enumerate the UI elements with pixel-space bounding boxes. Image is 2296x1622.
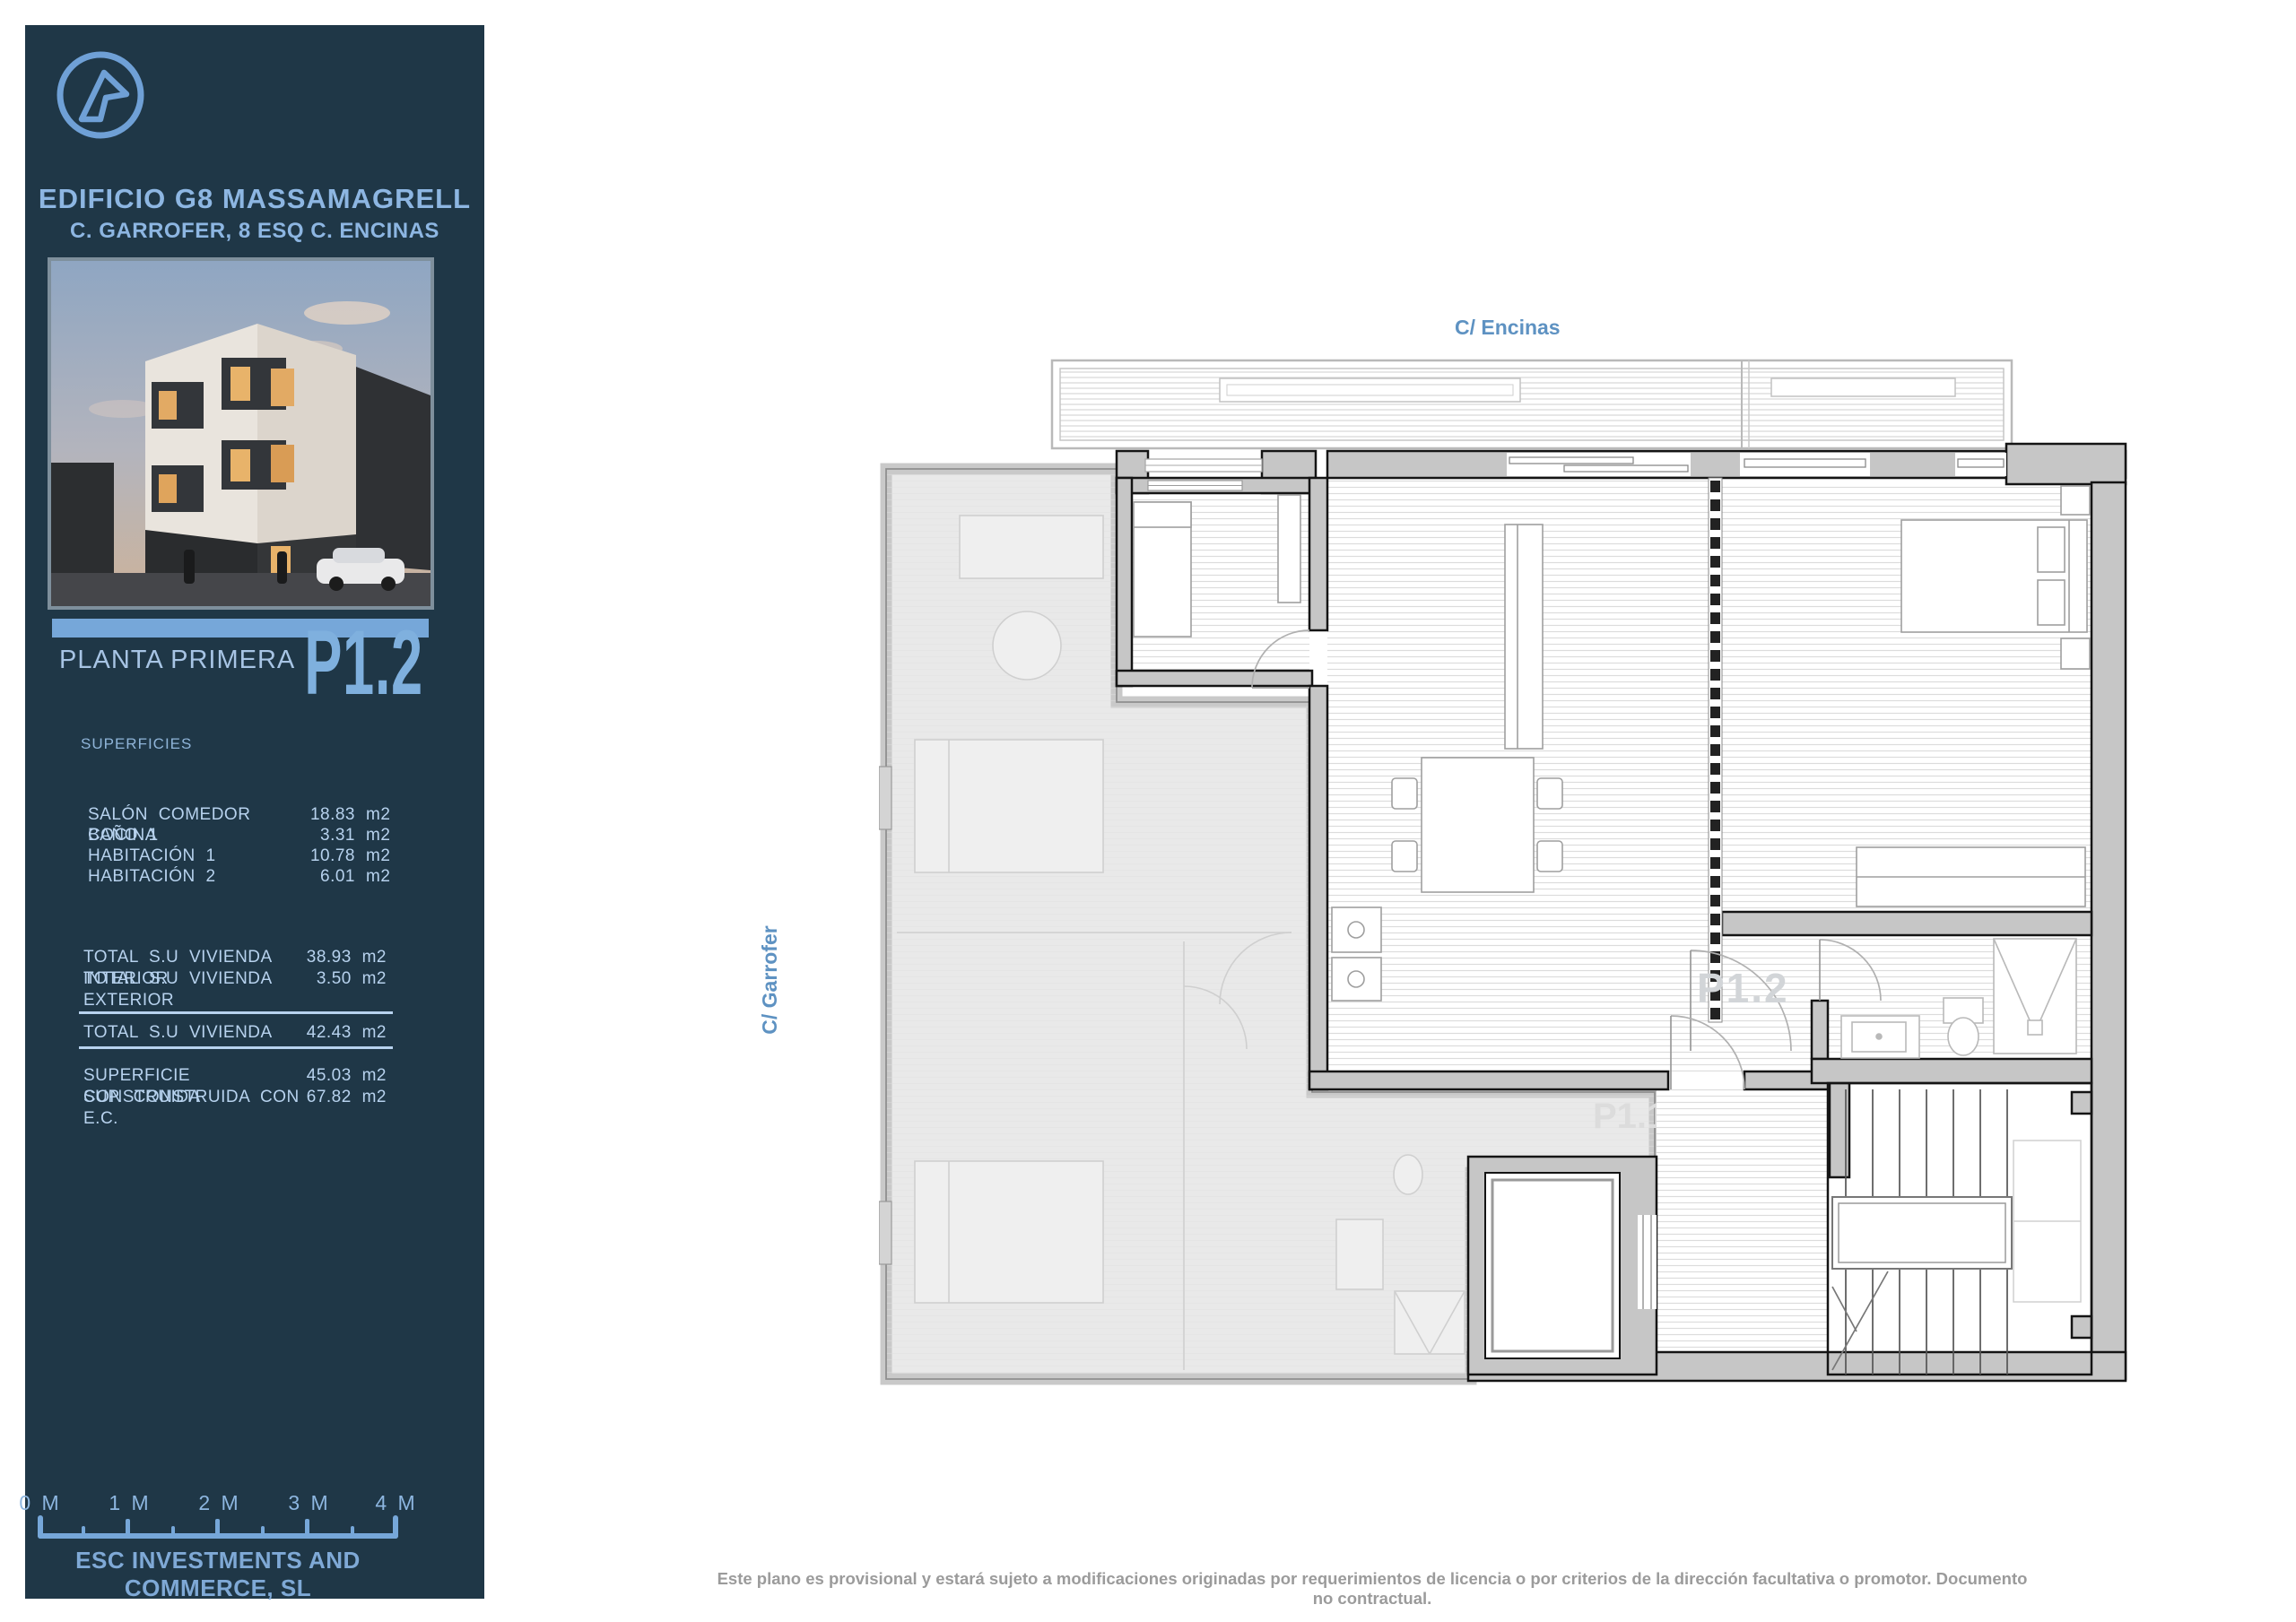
floor-plan-drawing: P1.1 (879, 359, 2152, 1399)
table-row: SALÓN COMEDOR COCINA 18.83 m2 (88, 804, 402, 825)
divider-line (79, 1046, 393, 1049)
scale-label: 4 M (375, 1491, 417, 1515)
room-label: SALÓN COMEDOR COCINA (88, 804, 300, 825)
total-label: TOTAL S.U VIVIENDA INTERIOR (83, 947, 307, 968)
scale-label: 3 M (288, 1491, 330, 1515)
scale-ruler: 0 M 1 M 2 M 3 M 4 M (38, 1491, 398, 1543)
room-unit: m2 (355, 866, 402, 887)
grand-total-value: 42.43 m2 (307, 1022, 387, 1044)
built-label: SUPERFICIE CONSTRUIDA (83, 1065, 307, 1087)
divider-line (79, 1011, 393, 1014)
inactive-unit-watermark: P1.1 (1593, 1097, 1666, 1136)
ruler-tick-minor (171, 1526, 175, 1537)
building-photo-art (51, 261, 430, 606)
building-photo (48, 257, 434, 610)
scale-label: 2 M (198, 1491, 240, 1515)
ruler-tick-minor (351, 1526, 354, 1537)
total-value: 3.50 m2 (317, 968, 387, 990)
ruler-tick-minor (82, 1526, 85, 1537)
room-value: 6.01 (300, 866, 355, 887)
floorplan-page: { "sidebar": { "title": "EDIFICIO G8 MAS… (0, 0, 2296, 1622)
room-unit: m2 (355, 804, 402, 825)
room-surface-table: SALÓN COMEDOR COCINA 18.83 m2 BAÑO 1 3.3… (88, 804, 402, 887)
street-label-encinas: C/ Encinas (1455, 316, 1561, 340)
total-value: 38.93 m2 (307, 947, 387, 968)
table-row: SUP. CONSTRUIDA CON E.C. 67.82 m2 (83, 1087, 387, 1108)
table-row: HABITACIÓN 1 10.78 m2 (88, 846, 402, 866)
built-label: SUP. CONSTRUIDA CON E.C. (83, 1087, 307, 1108)
grand-total-row: TOTAL S.U VIVIENDA 42.43 m2 (83, 1022, 387, 1044)
room-unit: m2 (355, 846, 402, 866)
table-row: BAÑO 1 3.31 m2 (88, 825, 402, 846)
scale-label: 0 M (19, 1491, 61, 1515)
ruler-end (393, 1515, 398, 1539)
table-row: HABITACIÓN 2 6.01 m2 (88, 866, 402, 887)
total-label: TOTAL S.U VIVIENDA EXTERIOR (83, 968, 317, 990)
ruler-tick (215, 1519, 220, 1537)
room-unit: m2 (355, 825, 402, 846)
table-row: TOTAL S.U VIVIENDA INTERIOR 38.93 m2 (83, 947, 387, 968)
ruler-tick (126, 1519, 130, 1537)
floor-level-label: PLANTA PRIMERA (59, 646, 295, 675)
table-row: TOTAL S.U VIVIENDA EXTERIOR 3.50 m2 (83, 968, 387, 990)
built-value: 45.03 m2 (307, 1065, 387, 1087)
room-value: 18.83 (300, 804, 355, 825)
unit-code-large: P1.2 (304, 617, 423, 708)
company-name: ESC INVESTMENTS AND COMMERCE, SL (25, 1547, 411, 1602)
info-sidebar: EDIFICIO G8 MASSAMAGRELL C. GARROFER, 8 … (25, 25, 484, 1599)
building-address: C. GARROFER, 8 ESQ C. ENCINAS (25, 219, 484, 244)
ruler-tick-minor (261, 1526, 265, 1537)
street-label-garrofer: C/ Garrofer (758, 917, 781, 1043)
ruler-end (38, 1515, 43, 1539)
surfaces-heading: SUPERFICIES (81, 735, 192, 753)
grand-total-label: TOTAL S.U VIVIENDA (83, 1022, 307, 1044)
room-label: BAÑO 1 (88, 825, 300, 846)
table-row: TOTAL S.U VIVIENDA 42.43 m2 (83, 1022, 387, 1044)
totals-table: TOTAL S.U VIVIENDA INTERIOR 38.93 m2 TOT… (83, 947, 387, 990)
scale-label: 1 M (109, 1491, 151, 1515)
terrace (1052, 360, 2012, 448)
disclaimer-text: Este plano es provisional y estará sujet… (713, 1569, 2031, 1609)
building-title: EDIFICIO G8 MASSAMAGRELL (25, 183, 484, 215)
room-label: HABITACIÓN 2 (88, 866, 300, 887)
sliding-partition (1709, 478, 1722, 1022)
room-label: HABITACIÓN 1 (88, 846, 300, 866)
room-value: 10.78 (300, 846, 355, 866)
table-row: SUPERFICIE CONSTRUIDA 45.03 m2 (83, 1065, 387, 1087)
room-value: 3.31 (300, 825, 355, 846)
active-unit-watermark: P1.2 (1697, 965, 1789, 1011)
brand-logo-icon (54, 48, 147, 142)
elevator (1468, 1157, 1657, 1375)
built-surface-table: SUPERFICIE CONSTRUIDA 45.03 m2 SUP. CONS… (83, 1065, 387, 1108)
built-value: 67.82 m2 (307, 1087, 387, 1108)
ruler-tick (305, 1519, 309, 1537)
